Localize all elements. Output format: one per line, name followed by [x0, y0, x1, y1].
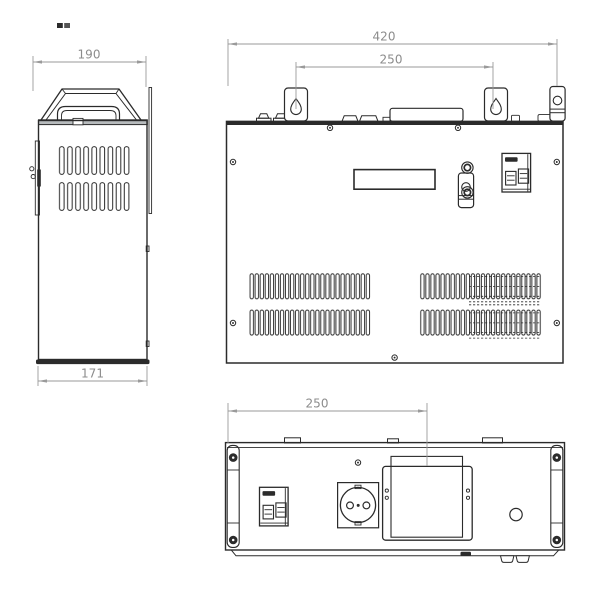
top-cover-plate: [390, 108, 463, 121]
dimension-171: 171: [38, 366, 147, 386]
top-small-fittings-right: [512, 115, 553, 122]
side-top-notch: [73, 118, 83, 124]
carry-handle: [41, 89, 141, 120]
dimension-190: 190: [33, 48, 146, 92]
power-socket: [338, 483, 379, 528]
front-vent-grille-left-row1: [249, 273, 370, 299]
side-view: 190 171: [30, 23, 152, 386]
dim-label-190: 190: [78, 48, 101, 62]
dim-label-250-rear: 250: [306, 397, 329, 411]
dim-label-420: 420: [373, 30, 396, 44]
corner-rail-left: [227, 445, 239, 547]
side-vent-grille-row1: [58, 146, 131, 175]
cable-hole: [510, 508, 522, 520]
indicator-button-top: [462, 162, 473, 173]
front-view: 420 250: [227, 30, 566, 364]
technical-drawing-canvas: 190 171: [0, 0, 600, 600]
circuit-breaker-front: [502, 153, 531, 192]
side-base-bar: [36, 360, 150, 365]
top-low-bumps: [342, 116, 390, 122]
dim-label-250-front: 250: [380, 53, 403, 67]
mounting-bracket-right: [550, 87, 565, 122]
terminal-cover: [383, 456, 473, 540]
dimension-250-front: 250: [296, 53, 493, 110]
corner-rail-right: [551, 445, 563, 547]
dim-label-171: 171: [81, 367, 104, 381]
rear-view: 250: [226, 397, 565, 563]
top-terminal-caps: [257, 114, 289, 122]
dimension-250-rear: 250: [228, 397, 427, 467]
rear-screw: [355, 460, 360, 465]
rear-latch: [30, 141, 41, 215]
keyhole-bracket-right: [485, 88, 508, 121]
logo-mark: [57, 23, 70, 28]
rear-bottom-details: [232, 550, 559, 562]
side-vent-grille-row2: [58, 182, 131, 211]
front-vent-grille-left-row2: [249, 310, 370, 336]
front-panel-display: [354, 170, 435, 190]
circuit-breaker-rear: [260, 487, 289, 526]
